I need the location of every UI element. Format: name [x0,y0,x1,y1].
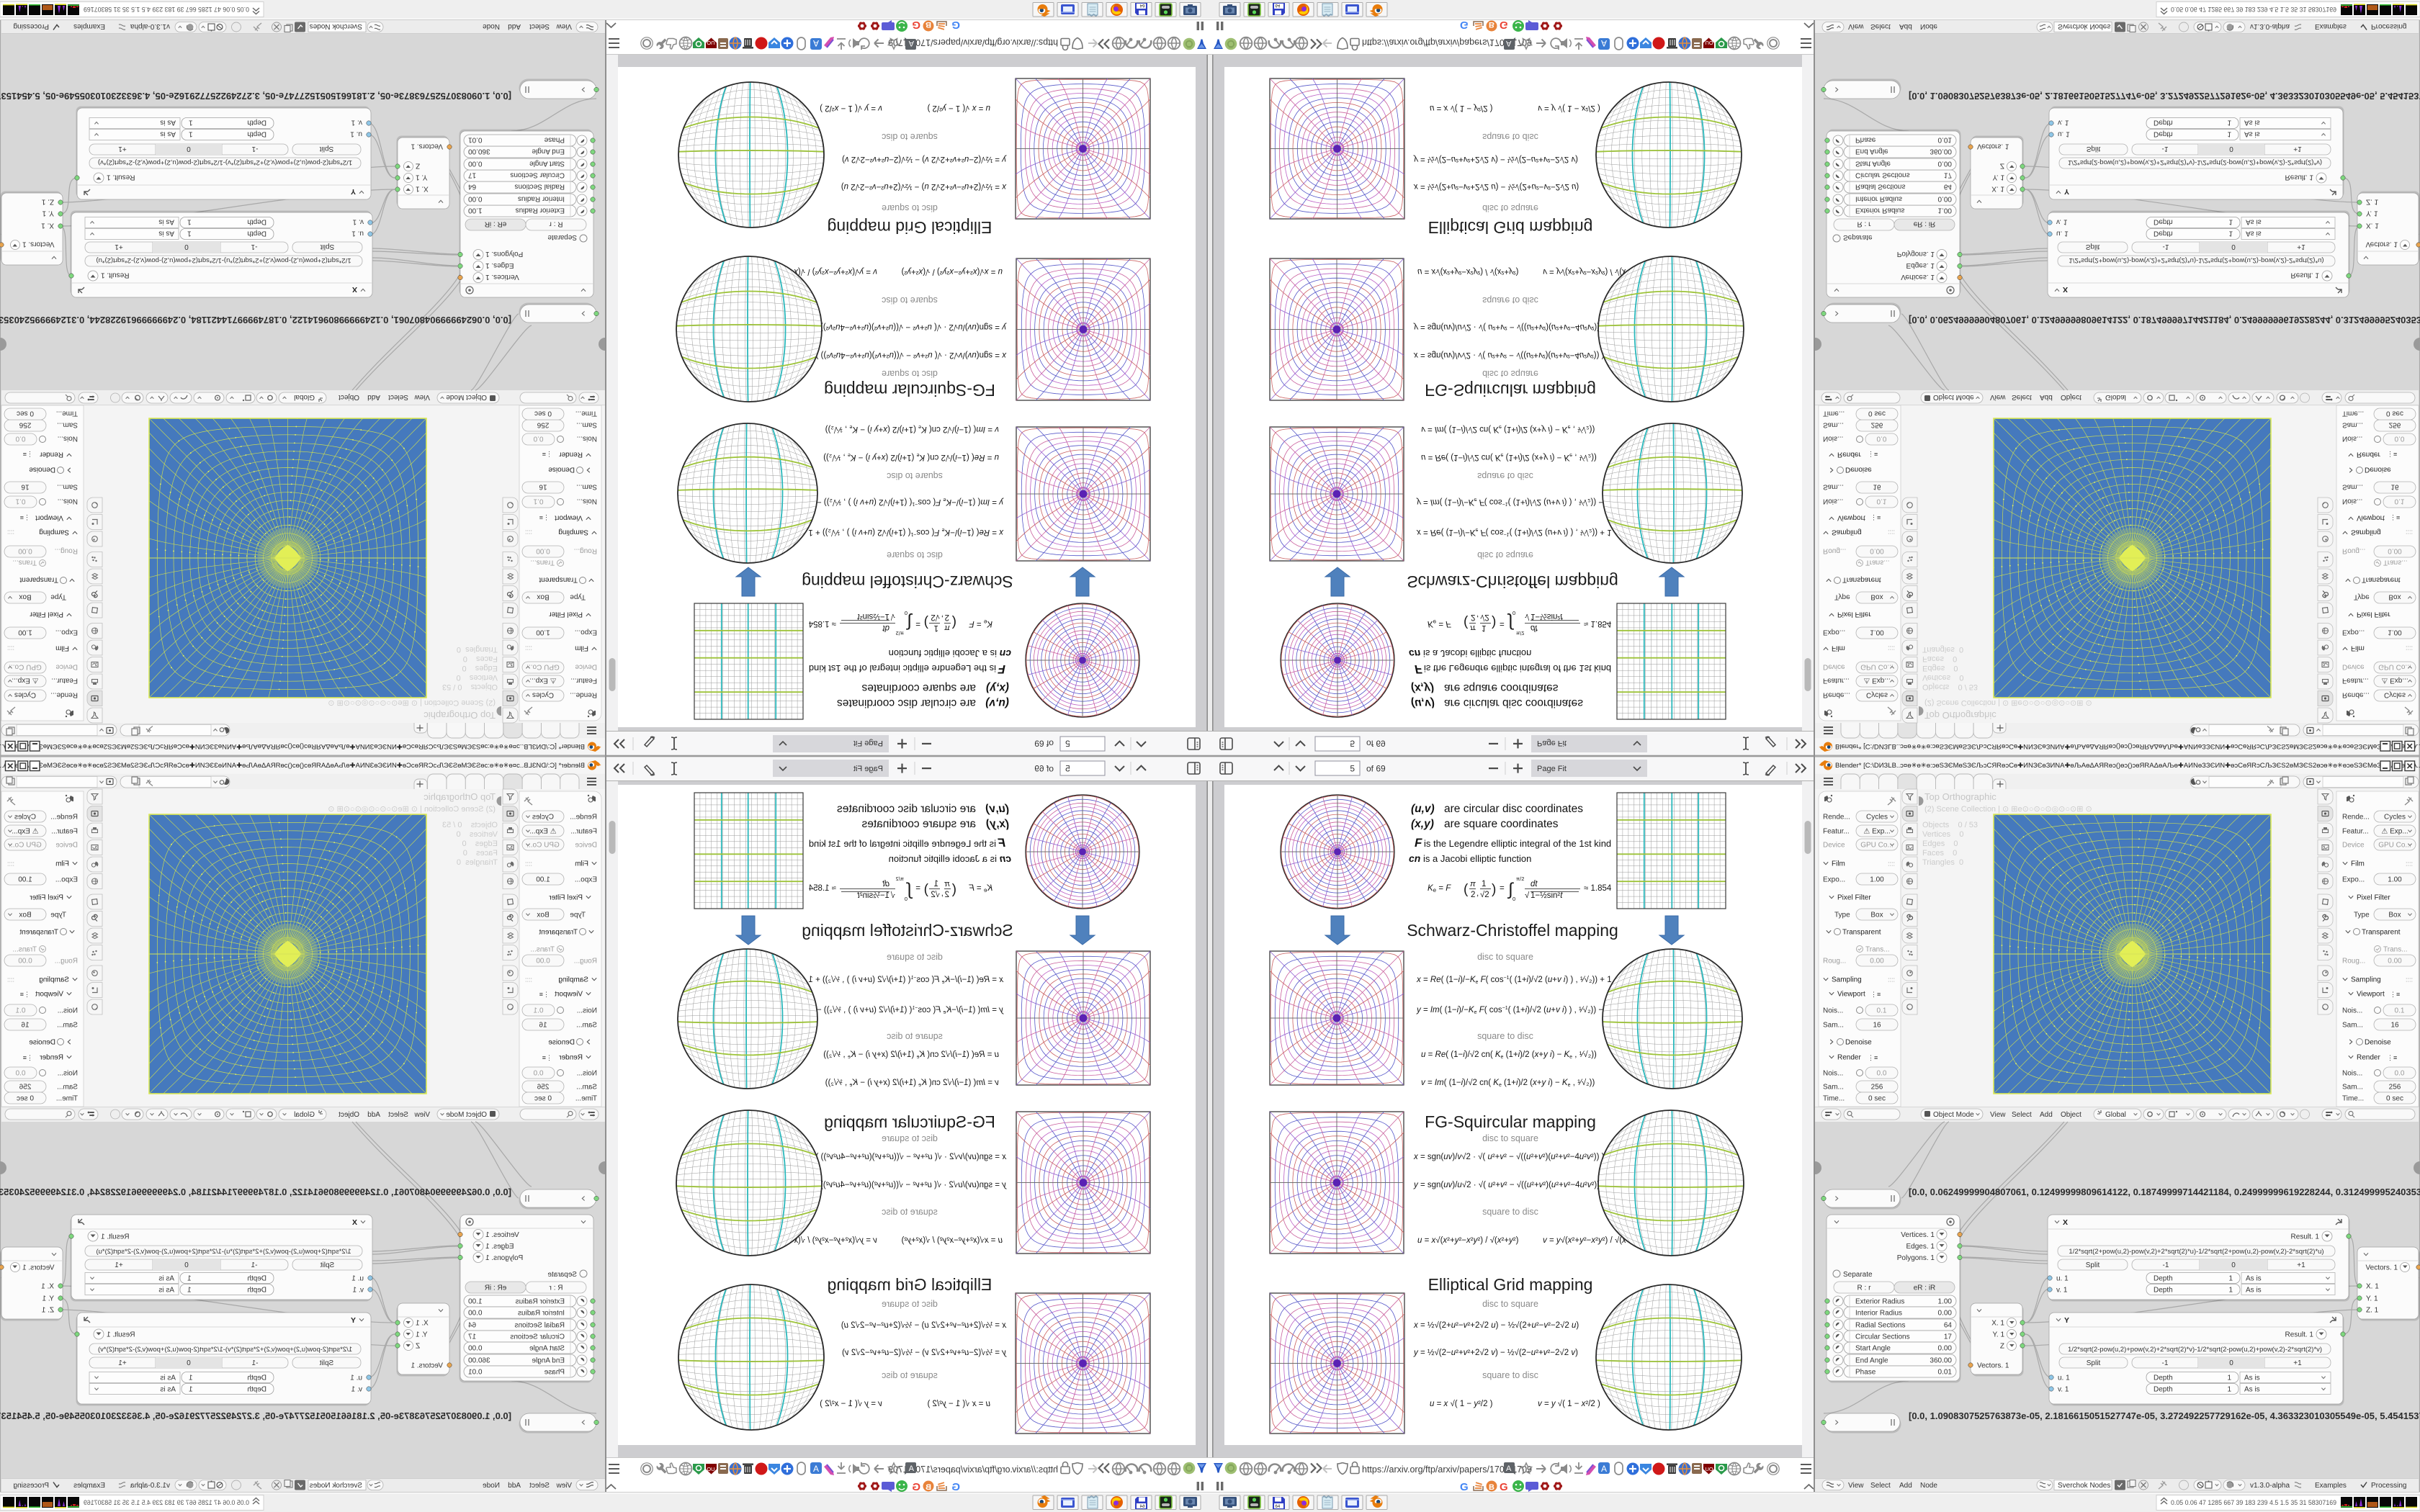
svg-text:Rende...: Rende... [1823,814,1850,822]
svg-text:17: 17 [1944,1333,1953,1341]
svg-text:y = ½√(2−u²+v²+2√2 v) − ½√(2−u: y = ½√(2−u²+v²+2√2 v) − ½√(2−u²+v²−2√2 v… [1413,1348,1578,1357]
svg-text:Objects 0 / 53: Objects 0 / 53 [1922,821,1978,829]
svg-text:Object: Object [2061,1111,2081,1119]
svg-text:Rende...: Rende... [2342,814,2370,822]
svg-text:As is: As is [2244,1386,2260,1394]
svg-text:y = sgn(uv)/u√2 · √( u²+v² − √: y = sgn(uv)/u√2 · √( u²+v² − √((u²+v²)(u… [1413,1180,1605,1189]
svg-text:Viewport: Viewport [1837,991,1865,999]
svg-text:√: √ [1525,891,1530,900]
svg-text:::::: :::: [1888,976,1895,984]
svg-text:Page Fit: Page Fit [1537,765,1567,773]
svg-text:End Angle: End Angle [1855,1357,1888,1365]
svg-text:(x,y): (x,y) [1411,818,1434,830]
svg-text:is the Legendre elliptic integ: is the Legendre elliptic integral of the… [1424,838,1611,849]
svg-text:π/2: π/2 [1516,876,1524,882]
svg-text:F: F [1415,836,1422,850]
svg-text:FG-Squircular mapping: FG-Squircular mapping [1425,1112,1596,1131]
svg-text:View: View [1990,1111,2006,1119]
svg-text:u. 1: u. 1 [2056,1275,2069,1283]
svg-text:square to disc: square to disc [1482,1207,1538,1217]
svg-text:::::: :::: [2406,976,2413,984]
svg-text:Split: Split [2087,1359,2101,1367]
svg-text:X. 1: X. 1 [1991,1320,2004,1328]
svg-text:eR : iR: eR : iR [1914,1284,1936,1292]
svg-text:0.00: 0.00 [1938,1310,1953,1318]
svg-text:x = ½√(2+u²−v²+2√2 u) − ½√(2+u: x = ½√(2+u²−v²+2√2 u) − ½√(2+u²−v²−2√2 u… [1413,1320,1579,1330]
svg-text:As is: As is [2246,1275,2262,1283]
svg-text:0.1: 0.1 [2395,1007,2405,1015]
svg-text:Schwarz-Christoffel mapping: Schwarz-Christoffel mapping [1407,921,1618,940]
svg-text:G: G [1500,1481,1508,1493]
svg-text:0 sec: 0 sec [2386,1095,2403,1103]
svg-text:Film: Film [2351,860,2365,868]
svg-text:Nois...: Nois... [2342,1070,2362,1078]
svg-text:⋮≡: ⋮≡ [1870,991,1881,998]
svg-text:Device: Device [1823,842,1845,850]
svg-text:Vertices. 1: Vertices. 1 [1901,1231,1935,1239]
svg-text:(2) Scene Collection | ⊙ ⊞e⊙○⊙: (2) Scene Collection | ⊙ ⊞e⊙○⊙○⊙◎⊙○⊙⊞ ⊙ [1924,805,2092,814]
svg-text:Featur...: Featur... [2342,828,2369,836]
svg-text:Cycles: Cycles [2384,814,2406,822]
svg-text:16: 16 [2390,1022,2399,1030]
svg-text:y = Im( (1−i)/−Ke F( cos−1( (1: y = Im( (1−i)/−Ke F( cos−1( (1+i)/√2 (u+… [1416,1005,1610,1015]
svg-text:π: π [1470,880,1476,888]
svg-text:::::: :::: [2406,860,2413,868]
svg-text:Triangles 0: Triangles 0 [1922,858,1963,867]
svg-text:16: 16 [1873,1022,1881,1030]
svg-text:Global: Global [2105,1111,2126,1119]
svg-text:Blender* [C:\DИЗLB..ɔ¤ө✳ө✳ө:ɔө: Blender* [C:\DИЗLB..ɔ¤ө✳ө✳ө:ɔөSЗЄMөSЗЄЉɔ… [1835,762,2420,770]
svg-text:GPU Co...: GPU Co... [1860,842,1894,850]
svg-text:Result. 1: Result. 1 [2285,1331,2314,1339]
svg-text:Sam...: Sam... [1823,1084,1844,1092]
svg-text:cn: cn [1409,852,1420,864]
svg-text:2: 2 [1471,891,1475,899]
svg-text:360.00: 360.00 [1930,1357,1952,1365]
svg-text:0 sec: 0 sec [1868,1095,1886,1103]
svg-text:v1.3.0-alpha: v1.3.0-alpha [2250,1482,2290,1490]
svg-text:Edges. 1: Edges. 1 [1906,1243,1935,1251]
svg-text:0.1: 0.1 [1877,1007,1887,1015]
svg-text:Sam...: Sam... [1823,1022,1844,1030]
svg-text:u = x √( 1 − y²/2 ): u = x √( 1 − y²/2 ) [1430,1399,1493,1408]
svg-text:Time...: Time... [2342,1095,2364,1103]
svg-text:Split: Split [2086,1261,2100,1269]
svg-text:-1: -1 [2163,1261,2169,1269]
svg-text:Select: Select [1870,1482,1891,1490]
svg-text:1.00: 1.00 [2388,876,2402,884]
svg-text:⋮≡: ⋮≡ [2390,991,2400,998]
svg-text:1/2*sqrt(2-pow(u,2)+pow(v,2)+2: 1/2*sqrt(2-pow(u,2)+pow(v,2)+2*sqrt(2)*v… [2068,1346,2322,1354]
svg-text:⚠ Exp...: ⚠ Exp... [2381,828,2408,836]
svg-text:v = y √( 1 − x²/2 ): v = y √( 1 − x²/2 ) [1538,1399,1600,1408]
svg-text:v. 1: v. 1 [2058,1386,2069,1394]
svg-text:Roug...: Roug... [2342,958,2365,966]
svg-text:Elliptical Grid mapping: Elliptical Grid mapping [1428,1275,1593,1294]
svg-text:⚠ Exp...: ⚠ Exp... [1863,828,1890,836]
svg-text:+1: +1 [2297,1261,2305,1269]
svg-text:Pixel Filter: Pixel Filter [2357,894,2390,902]
svg-text:0.0: 0.0 [1877,1070,1887,1078]
svg-text:u = x√(x²+y²−x²y²) / √(x²+y²): u = x√(x²+y²−x²y²) / √(x²+y²) [1417,1236,1519,1245]
svg-text:A: A [1601,1464,1607,1474]
svg-text:0.01: 0.01 [1938,1369,1953,1377]
svg-text:View: View [1848,1482,1864,1490]
svg-text:x = Re( (1−i)/−Ke F( cos−1( (1: x = Re( (1−i)/−Ke F( cos−1( (1+i)/√2 (u+… [1416,975,1612,985]
svg-text:Film: Film [1832,860,1845,868]
svg-text:Expo...: Expo... [2342,876,2365,884]
svg-text:0: 0 [1512,896,1515,902]
svg-text:Exterior Radius: Exterior Radius [1855,1298,1904,1306]
svg-text:Render: Render [1837,1054,1861,1062]
svg-text:0.00: 0.00 [1870,958,1884,966]
svg-text:1: 1 [2228,1287,2233,1295]
svg-text:1−½sin²t: 1−½sin²t [1531,891,1563,900]
svg-text:1/2*sqrt(2+pow(u,2)-pow(v,2)+2: 1/2*sqrt(2+pow(u,2)-pow(v,2)+2*sqrt(2)*u… [2069,1248,2323,1256]
svg-text:dt: dt [1531,880,1538,888]
svg-text:[0.0, 0.06249999904807061, 0.1: [0.0, 0.06249999904807061, 0.12499999809… [1909,1187,2420,1197]
svg-text:Faces 0: Faces 0 [1922,849,1957,858]
svg-text:is a Jacobi elliptic function: is a Jacobi elliptic function [1423,853,1531,864]
svg-text:u. 1: u. 1 [2058,1374,2070,1382]
svg-text:Z. 1: Z. 1 [2366,1307,2379,1315]
svg-text:64: 64 [1276,1505,1281,1509]
svg-text:(: ( [1464,882,1469,897]
svg-text:x = sgn(uv)/v√2 · √( u²+v² − √: x = sgn(uv)/v√2 · √( u²+v² − √((u²+v²)(u… [1413,1152,1605,1161]
svg-text:Depth: Depth [2154,1287,2173,1295]
svg-text:Trans...: Trans... [2383,946,2408,954]
svg-text:UO: UO [1706,1466,1713,1472]
svg-text:Add: Add [2040,1111,2053,1119]
svg-text:GPU Co...: GPU Co... [2378,842,2411,850]
svg-text:0.0: 0.0 [2395,1070,2405,1078]
svg-text:Sampling: Sampling [1832,976,1862,984]
svg-text:1: 1 [2227,1374,2231,1382]
svg-text:Vectors. 1: Vectors. 1 [2366,1264,2398,1272]
svg-text:5: 5 [1350,764,1355,774]
svg-text:Y. 1: Y. 1 [1993,1331,2005,1339]
svg-text:Y. 1: Y. 1 [2366,1295,2378,1303]
svg-text:disc to square: disc to square [1482,1133,1538,1143]
svg-text:Phase: Phase [1855,1369,1876,1377]
svg-text:Separate: Separate [1843,1271,1873,1279]
svg-text:Edges 0: Edges 0 [1922,840,1958,848]
svg-text:::::: :::: [1888,860,1895,868]
svg-text:X. 1: X. 1 [2366,1283,2379,1291]
svg-text:Box: Box [2388,912,2401,919]
svg-text:B: B [1489,1483,1494,1492]
svg-text:Interior Radius: Interior Radius [1855,1310,1902,1318]
svg-text:Nois...: Nois... [1823,1007,1843,1015]
svg-text:): ) [1492,882,1496,897]
svg-text:Polygons. 1: Polygons. 1 [1897,1254,1935,1262]
svg-text:(u,v): (u,v) [1411,803,1435,815]
svg-text:Viewport: Viewport [2357,991,2385,999]
svg-text:0: 0 [2231,1261,2236,1269]
svg-text:≈ 1.854: ≈ 1.854 [1584,884,1612,893]
svg-text:0.00: 0.00 [1938,1345,1953,1353]
svg-text:Vectors. 1: Vectors. 1 [1977,1362,2009,1370]
svg-text:Examples: Examples [2315,1482,2347,1490]
svg-text:square to disc: square to disc [1477,1031,1533,1041]
svg-text:Device: Device [2342,842,2365,850]
svg-text:1: 1 [2228,1275,2233,1283]
svg-text:Node: Node [1920,1482,1937,1490]
svg-text:Depth: Depth [2154,1386,2173,1394]
svg-text:Trans...: Trans... [1865,946,1890,954]
svg-text:=: = [1500,884,1505,893]
svg-text:0.05 0.06 47 1285 667 39 1: 0.05 0.06 47 1285 667 39 183 239 4.5 1.5… [2171,1499,2336,1506]
svg-text:disc to square: disc to square [1482,1299,1538,1309]
svg-text:Sverchok Nodes: Sverchok Nodes [2058,1482,2110,1490]
svg-text:Result. 1: Result. 1 [2291,1233,2320,1241]
svg-text:disc to square: disc to square [1477,952,1533,962]
svg-text:Depth: Depth [2154,1275,2173,1283]
svg-text:64: 64 [1944,1322,1953,1330]
svg-text:1: 1 [2227,1386,2231,1394]
svg-text:,: , [1476,889,1479,898]
svg-text:Transparent: Transparent [1842,929,1881,937]
svg-text:-1: -1 [2162,1359,2169,1367]
svg-text:R : r: R : r [1857,1284,1872,1292]
svg-text:Box: Box [1870,912,1883,919]
svg-text:v. 1: v. 1 [2056,1287,2068,1295]
svg-text:Type: Type [2354,912,2370,919]
svg-text:Object Mode: Object Mode [1933,1111,1974,1119]
svg-text:1.00: 1.00 [1870,876,1884,884]
svg-text:Type: Type [1834,912,1850,919]
svg-text:Depth: Depth [2154,1374,2173,1382]
svg-text:1: 1 [1482,880,1486,888]
svg-text:G: G [1460,1481,1469,1493]
svg-text:Sam...: Sam... [2342,1084,2363,1092]
svg-text:Cycles: Cycles [1866,814,1888,822]
svg-text:Add: Add [1899,1482,1912,1490]
svg-text:⋮≡: ⋮≡ [1868,1054,1878,1061]
svg-text:square to disc: square to disc [1482,1370,1538,1380]
svg-text:Sampling: Sampling [2351,976,2381,984]
svg-text:Radial Sections: Radial Sections [1855,1322,1905,1330]
svg-text:Nois...: Nois... [2342,1007,2362,1015]
svg-text:0.00: 0.00 [2388,958,2402,966]
svg-text:X: X [2063,1218,2068,1227]
svg-text:Top Orthographic: Top Orthographic [1924,791,1996,802]
svg-text:Denoise: Denoise [2365,1039,2391,1047]
svg-text:A: A [1506,1464,1512,1473]
svg-text:are square coordinates: are square coordinates [1444,818,1559,830]
svg-text:Sam...: Sam... [2342,1022,2363,1030]
svg-text:Pixel Filter: Pixel Filter [1837,894,1871,902]
svg-text:Featur...: Featur... [1823,828,1850,836]
svg-text:⋮≡: ⋮≡ [2387,1054,2397,1061]
svg-text:256: 256 [2389,1084,2401,1092]
svg-text:Nois...: Nois... [1823,1070,1843,1078]
svg-text:Transparent: Transparent [2362,929,2401,937]
svg-text:Render: Render [2357,1054,2380,1062]
svg-text:of 69: of 69 [1366,764,1386,774]
svg-text:Time...: Time... [1823,1095,1845,1103]
svg-text:As is: As is [2244,1374,2260,1382]
svg-text:√2: √2 [1480,890,1489,899]
svg-text:[0.0, 1.0908307525763873e-05,: [0.0, 1.0908307525763873e-05, 2.18166150… [1909,1410,2420,1421]
svg-text:Ke = F: Ke = F [1428,884,1451,894]
svg-text:1.00: 1.00 [1938,1298,1953,1306]
svg-text:Denoise: Denoise [1845,1039,1872,1047]
svg-text:Vertices 0: Vertices 0 [1922,830,1963,839]
svg-text:are circular disc coordinates: are circular disc coordinates [1444,803,1583,815]
svg-text:256: 256 [1871,1084,1883,1092]
svg-text:Start Angle: Start Angle [1855,1345,1891,1353]
svg-text:Processing: Processing [2371,1482,2406,1490]
svg-text:Select: Select [2012,1111,2032,1119]
svg-text:Roug...: Roug... [1823,958,1846,966]
svg-text:Circular Sections: Circular Sections [1855,1333,1910,1341]
svg-text:Z: Z [2000,1343,2004,1351]
svg-text:+1: +1 [2293,1359,2302,1367]
svg-text:Expo...: Expo... [1823,876,1845,884]
svg-text:As is: As is [2246,1287,2262,1295]
svg-text:0: 0 [2229,1359,2233,1367]
svg-text:Y: Y [2064,1316,2069,1325]
